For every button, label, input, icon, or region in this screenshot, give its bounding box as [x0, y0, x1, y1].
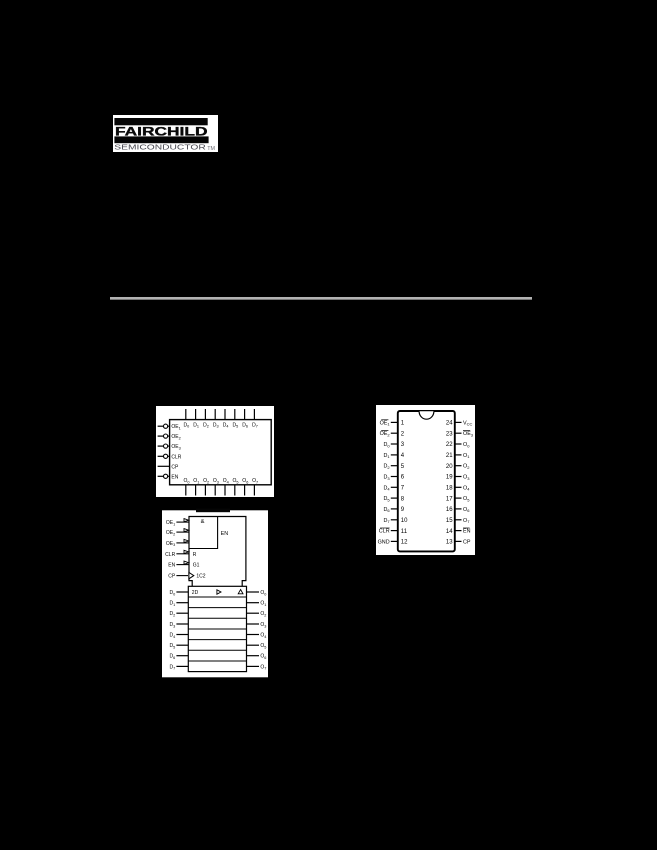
svg-text:D4: D4 — [383, 485, 390, 491]
svg-text:18: 18 — [446, 486, 453, 492]
svg-text:O7: O7 — [463, 518, 470, 524]
svg-text:OE2: OE2 — [380, 431, 391, 437]
svg-text:10: 10 — [401, 518, 408, 524]
svg-text:O0: O0 — [463, 442, 470, 448]
svg-text:O4: O4 — [463, 485, 470, 491]
svg-text:1C2: 1C2 — [196, 574, 205, 580]
svg-text:20: 20 — [446, 464, 453, 470]
svg-text:D2: D2 — [383, 464, 390, 470]
svg-text:O6: O6 — [463, 507, 470, 513]
svg-text:CLR: CLR — [171, 454, 181, 460]
svg-text:GND: GND — [378, 539, 390, 545]
svg-text:O2: O2 — [463, 464, 470, 470]
svg-text:16: 16 — [446, 507, 453, 513]
svg-text:21: 21 — [446, 453, 453, 459]
svg-text:D3: D3 — [383, 475, 390, 481]
svg-text:OE1: OE1 — [380, 420, 391, 426]
svg-text:D1: D1 — [383, 453, 390, 459]
svg-text:11: 11 — [401, 529, 408, 535]
svg-text:23: 23 — [446, 431, 453, 437]
svg-text:D0: D0 — [383, 442, 390, 448]
svg-text:CP: CP — [168, 574, 176, 580]
svg-text:19: 19 — [446, 475, 453, 481]
svg-text:CLR: CLR — [165, 552, 175, 558]
svg-text:CLR: CLR — [379, 529, 390, 535]
svg-text:R: R — [193, 552, 197, 558]
svg-text:12: 12 — [401, 540, 408, 546]
svg-text:TM: TM — [207, 146, 215, 152]
svg-text:O1: O1 — [463, 453, 470, 459]
svg-text:VCC: VCC — [463, 420, 472, 426]
svg-text:22: 22 — [446, 442, 453, 448]
svg-text:EN: EN — [221, 531, 229, 537]
svg-text:2D: 2D — [192, 590, 199, 596]
svg-text:D6: D6 — [383, 507, 390, 513]
svg-text:EN: EN — [463, 529, 471, 535]
svg-text:D5: D5 — [383, 496, 390, 502]
svg-text:24: 24 — [446, 421, 453, 427]
svg-text:13: 13 — [446, 540, 453, 546]
svg-text:OE3: OE3 — [463, 431, 474, 437]
svg-text:EN: EN — [171, 474, 178, 480]
svg-text:G1: G1 — [193, 563, 200, 569]
svg-text:CP: CP — [171, 464, 179, 470]
svg-text:15: 15 — [446, 518, 453, 524]
svg-text:CP: CP — [463, 539, 471, 545]
svg-text:SEMICONDUCTOR: SEMICONDUCTOR — [114, 143, 206, 152]
svg-text:&: & — [201, 519, 205, 525]
svg-text:O3: O3 — [463, 475, 470, 481]
svg-text:14: 14 — [446, 529, 453, 535]
svg-text:D7: D7 — [383, 518, 390, 524]
svg-text:O5: O5 — [463, 496, 470, 502]
svg-text:17: 17 — [446, 496, 453, 502]
svg-text:EN: EN — [168, 563, 175, 569]
